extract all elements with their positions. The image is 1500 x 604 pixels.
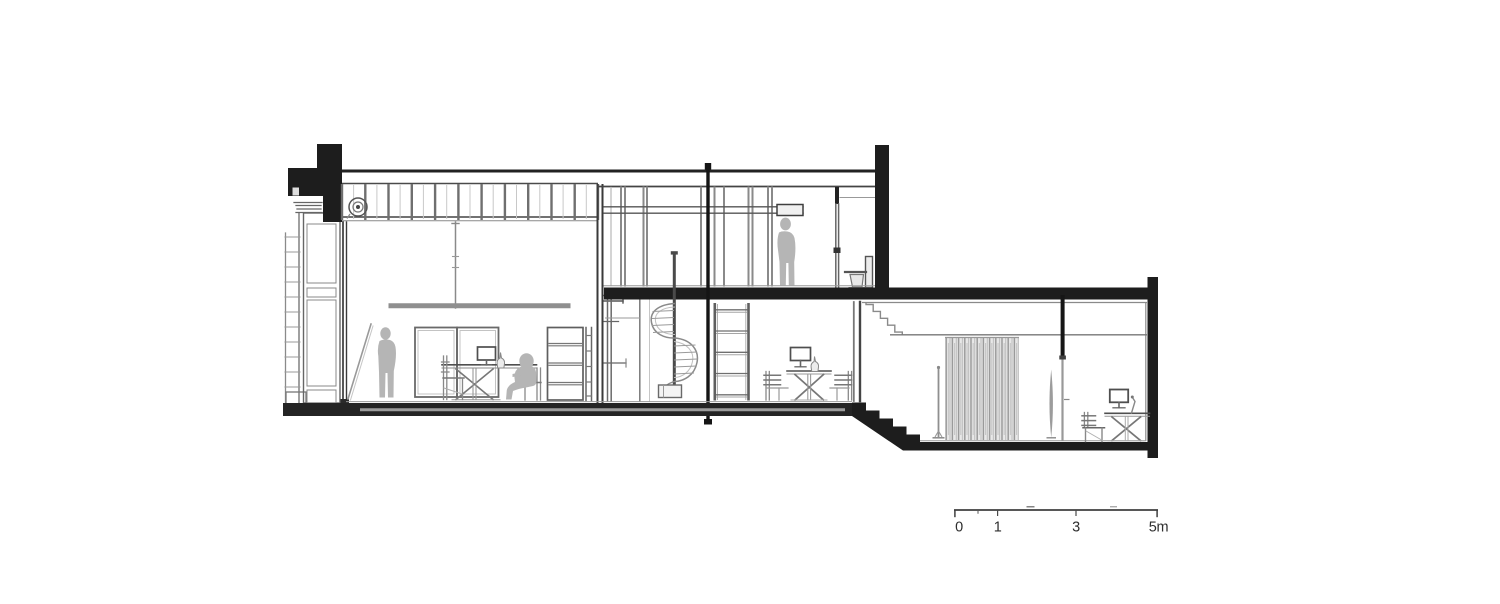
architectural-section-page: 0 1 3 5m <box>0 0 1500 604</box>
roof-line <box>342 170 877 173</box>
door-handle <box>834 248 841 254</box>
scale-label-0: 0 <box>955 520 963 536</box>
paper-background <box>0 0 1500 604</box>
scale-label-5m: 5m <box>1149 520 1169 536</box>
mezzanine-slab <box>604 288 1157 300</box>
beam-end <box>293 188 300 196</box>
lower-room-floor-slab <box>906 442 1148 451</box>
middle-parapet-wall <box>875 145 889 288</box>
section-drawing: 0 1 3 5m <box>0 0 1500 604</box>
scale-label-1: 1 <box>994 520 1002 536</box>
scale-label-3: 3 <box>1072 520 1080 536</box>
right-end-wall <box>1148 277 1159 458</box>
curtain <box>945 337 1019 440</box>
